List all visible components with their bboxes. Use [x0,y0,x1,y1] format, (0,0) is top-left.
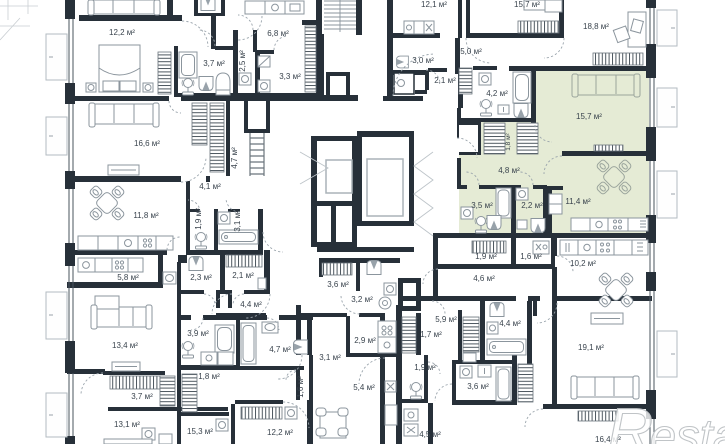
svg-text:15,7 м²: 15,7 м² [576,112,602,121]
svg-text:13,4 м²: 13,4 м² [112,341,138,350]
svg-text:3,3 м²: 3,3 м² [279,72,301,81]
svg-text:15,3 м²: 15,3 м² [187,427,213,436]
svg-text:4,1 м²: 4,1 м² [199,182,221,191]
svg-text:5,9 м²: 5,9 м² [435,315,457,324]
svg-text:2,3 м²: 2,3 м² [190,273,212,282]
svg-text:5,4 м²: 5,4 м² [353,383,375,392]
svg-text:3,9 м²: 3,9 м² [187,329,209,338]
svg-text:1,9 м²: 1,9 м² [414,363,436,372]
svg-text:4,2 м²: 4,2 м² [486,89,508,98]
svg-text:estate: estate [650,409,725,444]
svg-text:15,7 м²: 15,7 м² [514,0,540,9]
svg-text:12,1 м²: 12,1 м² [421,0,447,9]
svg-text:1,6 м²: 1,6 м² [520,252,542,261]
svg-text:13,1 м²: 13,1 м² [114,420,140,429]
svg-text:4,4 м²: 4,4 м² [499,319,521,328]
svg-text:1,7 м²: 1,7 м² [420,330,442,339]
svg-text:2,1 м²: 2,1 м² [232,271,254,280]
svg-text:4,7 м²: 4,7 м² [269,345,291,354]
svg-text:3,0 м²: 3,0 м² [412,56,434,65]
svg-text:4,7 м²: 4,7 м² [230,147,239,169]
svg-text:2,2 м²: 2,2 м² [521,201,543,210]
svg-text:19,1 м²: 19,1 м² [578,343,604,352]
svg-text:6,8 м²: 6,8 м² [267,29,289,38]
svg-text:4,8 м²: 4,8 м² [498,166,520,175]
svg-text:11,4 м²: 11,4 м² [565,197,591,206]
svg-text:18,8 м²: 18,8 м² [583,22,609,31]
svg-text:12,2 м²: 12,2 м² [109,28,135,37]
svg-text:2,9 м²: 2,9 м² [354,336,376,345]
svg-text:11,8 м²: 11,8 м² [133,211,159,220]
svg-text:5,0 м²: 5,0 м² [460,47,482,56]
svg-text:3,7 м²: 3,7 м² [131,392,153,401]
svg-text:1,8 м²: 1,8 м² [505,132,512,150]
svg-text:3,6 м²: 3,6 м² [327,280,349,289]
svg-text:3,1 м²: 3,1 м² [233,210,242,232]
svg-text:1,9 м²: 1,9 м² [194,208,203,230]
svg-text:2,1 м²: 2,1 м² [434,76,456,85]
svg-text:1,6 м²: 1,6 м² [296,376,305,398]
svg-text:12,2 м²: 12,2 м² [267,428,293,437]
svg-text:10,2 м²: 10,2 м² [570,259,596,268]
svg-text:1,8 м²: 1,8 м² [198,372,220,381]
svg-text:3,2 м²: 3,2 м² [351,295,373,304]
svg-text:2,5 м²: 2,5 м² [238,50,247,72]
svg-text:3,1 м²: 3,1 м² [319,353,341,362]
svg-text:3,7 м²: 3,7 м² [203,59,225,68]
svg-text:3,6 м²: 3,6 м² [467,382,489,391]
svg-text:4,4 м²: 4,4 м² [240,300,262,309]
svg-text:16,6 м²: 16,6 м² [134,139,160,148]
svg-text:5,8 м²: 5,8 м² [117,273,139,282]
svg-text:3,5 м²: 3,5 м² [471,201,493,210]
svg-text:4,5 м²: 4,5 м² [419,430,441,439]
svg-text:1,9 м²: 1,9 м² [475,252,497,261]
svg-text:R: R [607,395,653,444]
svg-text:4,6 м²: 4,6 м² [473,274,495,283]
